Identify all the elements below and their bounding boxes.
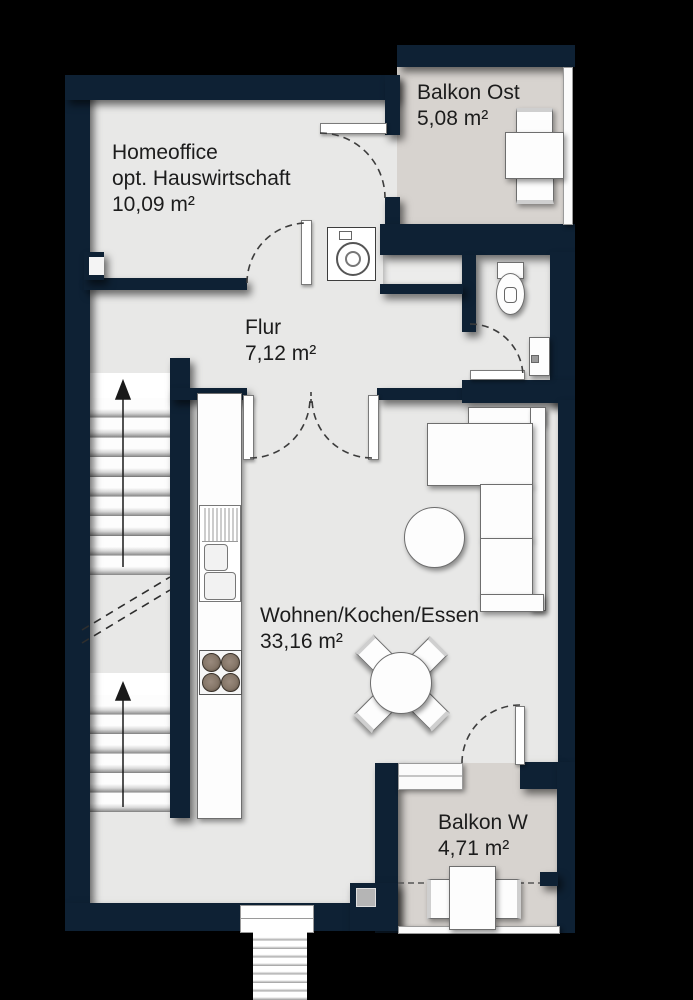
entry-threshold-line [241, 918, 313, 919]
washing-machine-door [336, 242, 370, 276]
wall-niche-window [383, 252, 463, 284]
wc-sink [529, 337, 550, 376]
room-label-flur: Flur 7,12 m² [245, 315, 316, 367]
wall-exterior-top [65, 75, 397, 100]
sofa-seat-2 [480, 538, 533, 596]
stove-burner [221, 653, 240, 672]
room-name: Flur [245, 315, 316, 341]
wall-balkon-w-right [557, 762, 575, 933]
room-label-homeoffice: Homeoffice opt. Hauswirtschaft 10,09 m² [112, 140, 291, 218]
wall-exterior-left [65, 75, 90, 905]
room-label-wohnen: Wohnen/Kochen/Essen 33,16 m² [260, 603, 479, 655]
stair-landing-lower [90, 673, 170, 696]
toilet-bowl-inner [504, 287, 517, 303]
balkon-w-chair-right [494, 879, 521, 919]
kitchen-counter [197, 393, 242, 819]
wall-balkon-w-notch [540, 872, 558, 886]
coffee-table [404, 507, 465, 568]
room-label-balkon-w: Balkon W 4,71 m² [438, 810, 528, 862]
wc-sink-tap [531, 355, 539, 363]
stair-flight-upper [90, 398, 170, 575]
wall-balkon-w-top-right [520, 762, 558, 789]
wall-pier-inset [89, 257, 104, 275]
washing-machine-drum [345, 251, 361, 267]
balkon-ost-table [505, 132, 564, 179]
room-name: Balkon Ost [417, 80, 520, 106]
wall-right-section [380, 224, 575, 255]
room-area: 5,08 m² [417, 106, 520, 132]
stair-flight-lower [90, 695, 170, 812]
door-leaf-double-left [243, 395, 254, 460]
wall-niche-bottom [380, 284, 463, 294]
wall-stair-kitchen [170, 358, 190, 818]
railing-balkon-ost [563, 67, 573, 225]
door-leaf-balkon-ost [320, 123, 387, 134]
door-leaf-homeoffice [301, 220, 312, 285]
wall-living-right [558, 400, 575, 765]
wall-balkon-ost-top [397, 45, 575, 67]
kitchen-sink-small [204, 544, 228, 571]
washing-machine [327, 227, 376, 281]
basement-window [356, 888, 376, 907]
railing-balkon-w-top [398, 763, 463, 790]
kitchen-sink-large [204, 572, 236, 600]
wall-flur-bottom-right [377, 388, 462, 400]
room-name: Homeoffice [112, 140, 291, 166]
stove [199, 650, 242, 695]
sofa-armrest-bottom [480, 594, 544, 612]
washing-machine-panel [339, 231, 352, 240]
room-name: Wohnen/Kochen/Essen [260, 603, 479, 629]
sofa-seat-1 [480, 484, 533, 540]
kitchen-drainer [202, 508, 238, 542]
entry-exterior-steps [253, 932, 307, 1000]
stove-burner [202, 673, 221, 692]
room-area: 33,16 m² [260, 629, 479, 655]
room-area: 4,71 m² [438, 836, 528, 862]
balkon-ost-chair-bottom [516, 176, 554, 204]
balkon-w-table [449, 866, 496, 930]
sofa-chaise [427, 423, 533, 486]
wall-mid-vertical-upper [385, 75, 400, 135]
floorplan-canvas: Homeoffice opt. Hauswirtschaft 10,09 m² … [0, 0, 693, 1000]
dining-table [370, 652, 432, 714]
entry-threshold [240, 905, 314, 933]
toilet-bowl [496, 273, 525, 315]
room-name-line2: opt. Hauswirtschaft [112, 166, 291, 192]
wall-mid-vertical-lower [385, 197, 400, 227]
room-name: Balkon W [438, 810, 528, 836]
room-area: 10,09 m² [112, 192, 291, 218]
room-area: 7,12 m² [245, 341, 316, 367]
kitchen-sink-module [199, 505, 241, 602]
wall-homeoffice-bottom [84, 278, 247, 290]
wall-wc-left [462, 255, 476, 332]
room-label-balkon-ost: Balkon Ost 5,08 m² [417, 80, 520, 132]
stove-burner [202, 653, 221, 672]
door-leaf-double-right [368, 395, 379, 460]
stove-burner [221, 673, 240, 692]
stair-landing-upper [90, 373, 170, 399]
door-leaf-wc [470, 370, 525, 380]
door-leaf-balkon-w [515, 706, 525, 765]
